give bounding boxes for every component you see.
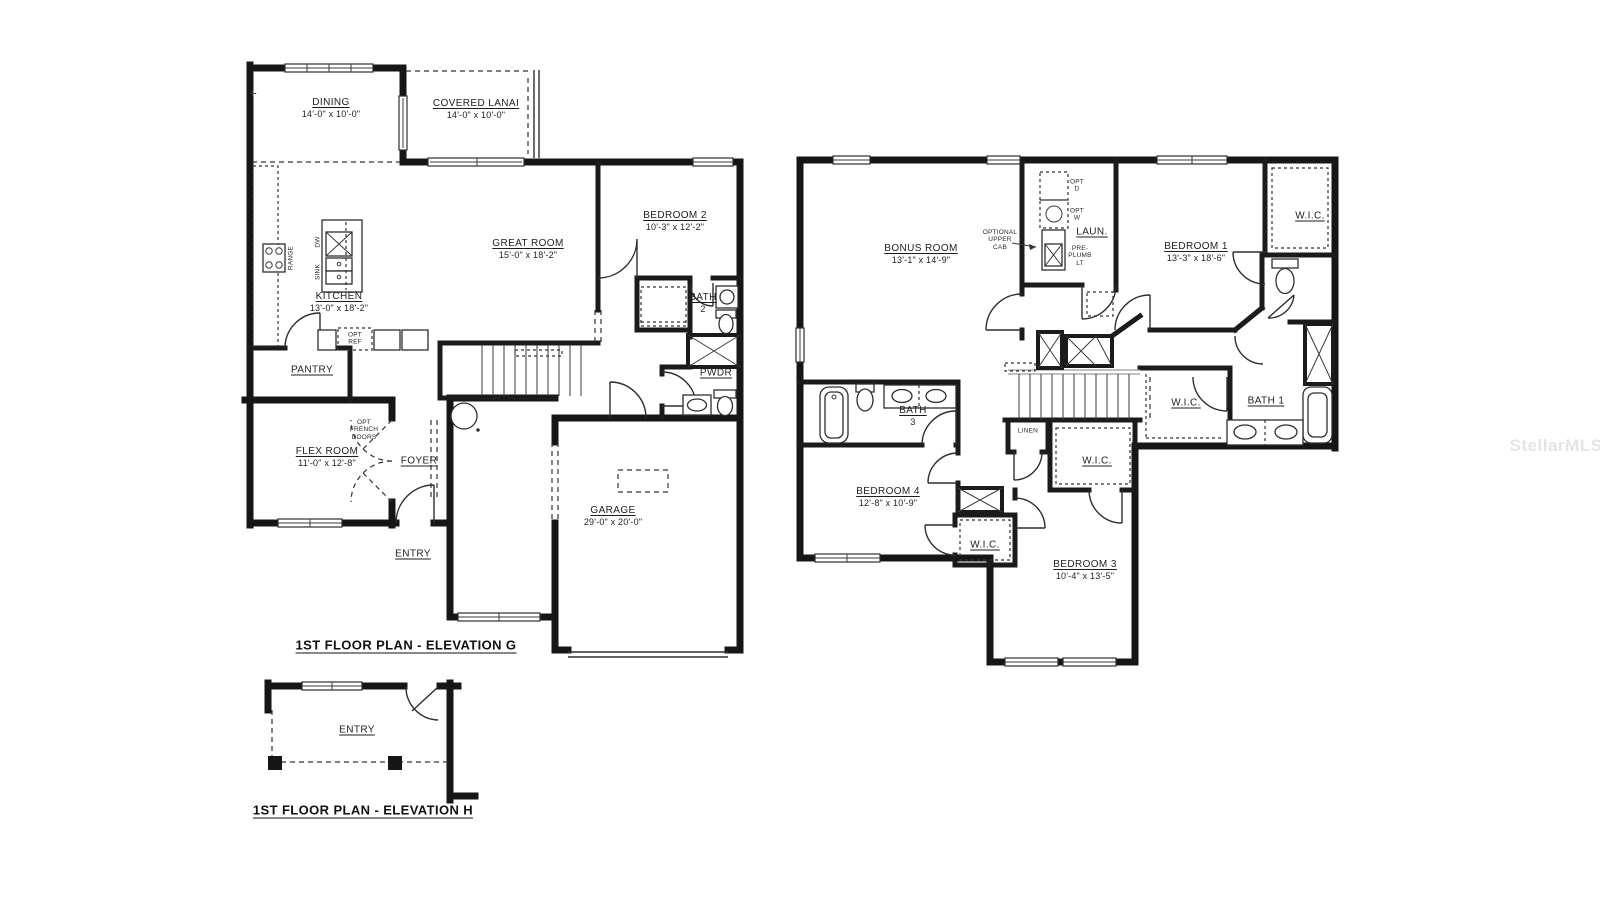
dryer-icon [1040,172,1068,200]
room-label-pwdr: PWDR [700,368,732,379]
window [987,156,1020,164]
room-name: LAUN. [1076,227,1107,238]
room-label-kitchen: KITCHEN13'-0" x 18'-2" [310,291,368,313]
kitchen-island [322,220,362,292]
window [693,158,733,166]
annotation-optional-upper-cab: OPTIONAL UPPER CAB [983,229,1017,251]
room-label-w-i-c: W.I.C. [1171,398,1201,409]
watermark: StellarMLS [1510,436,1600,456]
room-label-covered-lanai: COVERED LANAI14'-0" x 10'-0" [433,98,519,120]
room-dims: 29'-0" x 20'-0" [584,517,642,527]
room-name: BEDROOM 3 [1053,559,1117,570]
room-label-w-i-c: W.I.C. [970,540,1000,551]
room-label-bedroom-1: BEDROOM 113'-3" x 18'-6" [1164,241,1228,263]
porch-outline [272,710,450,762]
room-name: GREAT ROOM [492,238,563,249]
sink-icon [716,286,738,308]
window [302,682,362,690]
caption-elevation-g: 1ST FLOOR PLAN - ELEVATION G [296,638,517,653]
mech-closet [958,488,1002,512]
room-name: DINING [302,97,360,108]
bathtub-icon [1303,387,1332,443]
double-vanity [1227,420,1303,445]
plan-2-drawing [796,156,1335,666]
window [458,613,540,621]
room-dims: 10'-3" x 12'-2" [643,222,707,232]
room-name: W.I.C. [970,540,1000,551]
sliding-door [399,96,407,150]
room-label-bedroom-4: BEDROOM 412'-8" x 10'-9" [856,486,920,508]
room-label-foyer: FOYER [401,456,437,467]
room-name: FLEX ROOM [296,446,359,457]
room-label-flex-room: FLEX ROOM11'-0" x 12'-8" [296,446,359,468]
washer-icon [1040,200,1068,228]
laundry-tub-icon [1042,230,1065,270]
room-label-entry: ENTRY [395,549,431,560]
water-heater-icon [451,403,480,432]
toilet-icon [714,390,736,416]
annotation-range: RANGE [287,246,294,270]
room-name: GARAGE [584,505,642,516]
window [1063,658,1116,666]
room-label-bath: BATH2 [689,292,717,314]
room-dims: 11'-0" x 12'-8" [296,458,359,468]
room-label-pantry: PANTRY [291,365,333,376]
opt-cab-box [1087,292,1113,316]
door-arc [406,687,438,720]
room-name: PANTRY [291,365,333,376]
caption-elevation-h: 1ST FLOOR PLAN - ELEVATION H [253,803,473,818]
room-name: BEDROOM 1 [1164,241,1228,252]
room-name: KITCHEN [310,291,368,302]
room-label-bonus-room: BONUS ROOM13'-1" x 14'-9" [884,243,957,265]
room-label-w-i-c: W.I.C. [1082,456,1112,467]
room-label-w-i-c: W.I.C. [1295,211,1325,222]
room-name: W.I.C. [1295,211,1325,222]
range-icon [263,244,285,272]
room-label-dining: DINING14'-0" x 10'-0" [302,97,360,119]
stairs [482,345,581,396]
arrowhead [1029,244,1036,250]
window [285,64,373,72]
plan-h-drawing [268,682,475,800]
window [1157,156,1227,164]
floorplan-page: { "type": "floor-plan", "watermark": "St… [0,0,1600,899]
window [278,519,342,527]
room-name: ENTRY [339,725,375,736]
plan-g-drawing [245,64,740,657]
room-dims: 14'-0" x 10'-0" [302,109,360,119]
annotation-opt-french-doors: OPT FRENCH DOORS [350,419,378,441]
bedroom2-closet-shelf [641,287,686,326]
annotation-sink: SINK [314,264,321,280]
room-dims: 13'-0" x 18'-2" [310,303,368,313]
room-label-bedroom-2: BEDROOM 210'-3" x 12'-2" [643,210,707,232]
toilet-icon [716,310,736,334]
porch-post [268,756,282,770]
room-label-entry: ENTRY [339,725,375,736]
room-name: BATH [899,405,927,416]
window [815,554,880,562]
annotation-opt-d: OPT D [1070,179,1084,194]
room-dims: 15'-0" x 18'-2" [492,250,563,260]
room-label-laun: LAUN. [1076,227,1107,238]
room-label-bath: BATH3 [899,405,927,427]
room-label-bedroom-3: BEDROOM 310'-4" x 13'-5" [1053,559,1117,581]
room-name: W.I.C. [1082,456,1112,467]
annotation-dw: DW [314,236,321,247]
toilet-icon [1272,259,1298,294]
room-label-bath-1: BATH 1 [1248,396,1285,407]
room-name: FOYER [401,456,437,467]
room-name: BATH [689,292,717,303]
room-name: ENTRY [395,549,431,560]
sliding-door [428,158,524,166]
lanai-screen-wall [534,70,539,158]
porch-post [388,756,402,770]
stair-rail-dashed [515,350,562,356]
room-name: W.I.C. [1171,398,1201,409]
sink-icon [683,395,711,415]
room-name: BONUS ROOM [884,243,957,254]
garage-door [568,652,728,657]
annotation-pre-plumb-lt: PRE- PLUMB LT [1068,245,1091,267]
plan-h-walls [268,683,475,800]
kitchen-cabinets [318,330,428,350]
annotation-opt-ref: OPT REF [348,332,362,347]
room-name: BEDROOM 4 [856,486,920,497]
room-name: COVERED LANAI [433,98,519,109]
toilet-icon [856,384,874,411]
room-dims: 14'-0" x 10'-0" [433,110,519,120]
room-name: BEDROOM 2 [643,210,707,221]
annotation-opt-w: OPT W [1070,208,1084,223]
room-dims: 3 [899,417,927,427]
floorplan-canvas [0,0,1600,899]
linen-closet [688,335,740,367]
room-label-garage: GARAGE29'-0" x 20'-0" [584,505,642,527]
garage-attic-access [618,470,668,492]
window [833,156,870,164]
door-arcs [922,252,1294,555]
room-dims: 13'-1" x 14'-9" [884,255,957,265]
room-name: PWDR [700,368,732,379]
annotation-linen: LINEN [1018,427,1038,434]
shower-icon [1305,324,1333,384]
room-label-great-room: GREAT ROOM15'-0" x 18'-2" [492,238,563,260]
wic1-shelf [1272,168,1328,248]
room-name: BATH 1 [1248,396,1285,407]
stair-closet [1038,332,1112,368]
room-dims: 13'-3" x 18'-6" [1164,253,1228,263]
room-dims: 10'-4" x 13'-5" [1053,571,1117,581]
bathtub-icon [820,387,848,443]
registration-mark: + [249,86,257,101]
room-dims: 2 [689,304,717,314]
plan-2-exterior-walls [800,160,1335,662]
room-dims: 12'-8" x 10'-9" [856,498,920,508]
window [1005,658,1058,666]
window [796,328,804,362]
stairs [1005,363,1150,420]
